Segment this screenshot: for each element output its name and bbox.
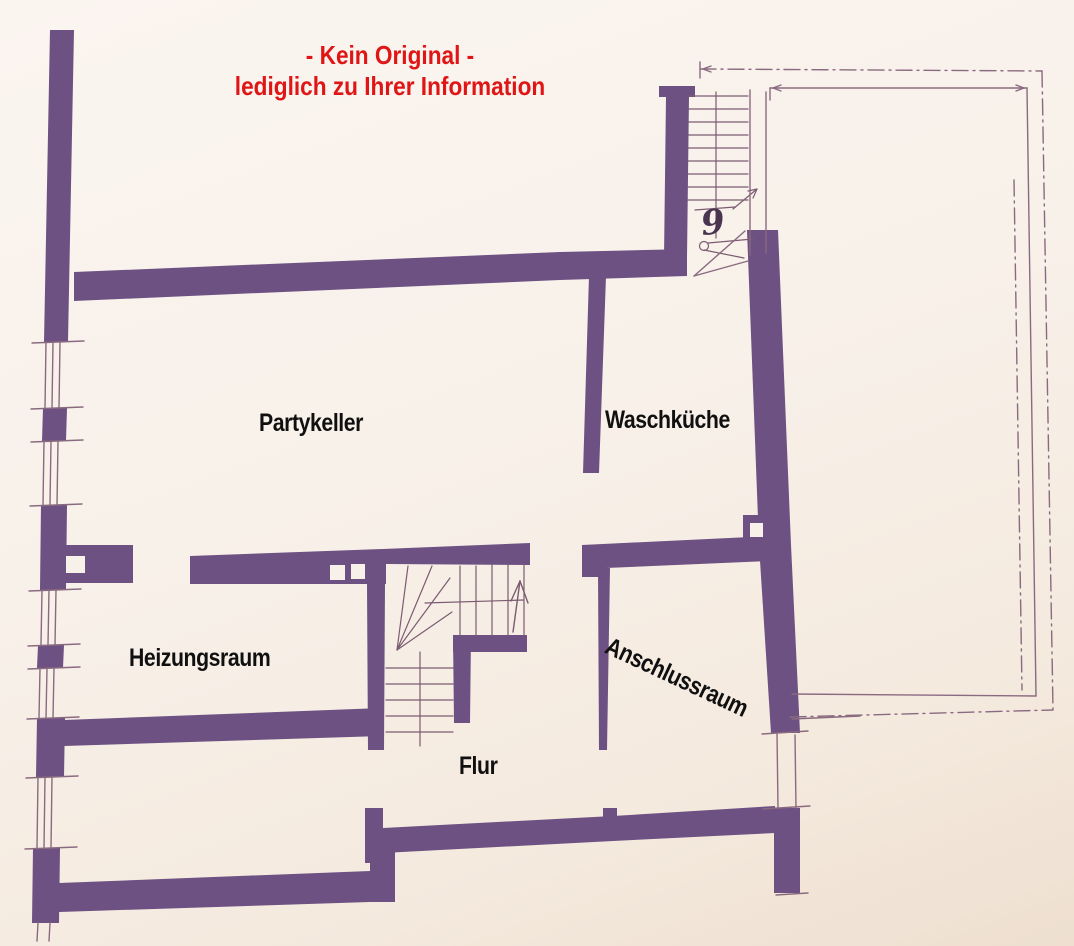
wall-stair-L <box>453 635 527 723</box>
terrace-outer-outline <box>700 69 1053 717</box>
floorplan-page: - Kein Original - lediglich zu Ihrer Inf… <box>0 0 1074 946</box>
wall-anschluss-top <box>582 536 770 577</box>
copy-notice-line2: lediglich zu Ihrer Information <box>205 71 576 102</box>
room-label-heizungsraum: Heizungsraum <box>129 646 270 671</box>
wall-divider-waschkueche <box>583 276 606 473</box>
wall-heizung-bottom <box>64 708 383 746</box>
wall-flur-bottom <box>365 806 775 863</box>
window-west-3 <box>28 589 81 646</box>
stair-direction-arrow <box>511 581 528 632</box>
terrace-inner-outline <box>770 85 1036 696</box>
room-label-partykeller: Partykeller <box>259 411 363 436</box>
room-label-waschkueche: Waschküche <box>605 408 730 433</box>
terrace-ticks <box>700 62 711 78</box>
copy-notice-line1: - Kein Original - <box>205 40 576 71</box>
room-label-flur: Flur <box>459 754 497 779</box>
basement-floorplan-drawing <box>0 0 1074 946</box>
window-west-2 <box>30 440 83 506</box>
wall-anschluss-west <box>598 568 617 832</box>
wall-west <box>32 30 133 923</box>
walls <box>32 30 800 923</box>
west-wall-foot-lines <box>37 923 50 941</box>
wall-south <box>59 833 395 912</box>
thin-lines <box>25 62 1053 941</box>
window-west-1 <box>31 341 84 409</box>
stair-count-annotation: 9 <box>699 202 727 244</box>
window-west-5 <box>25 776 78 849</box>
copy-notice: - Kein Original - lediglich zu Ihrer Inf… <box>205 40 576 102</box>
wall-exterior-stair <box>659 86 695 258</box>
window-west-4 <box>27 667 80 719</box>
